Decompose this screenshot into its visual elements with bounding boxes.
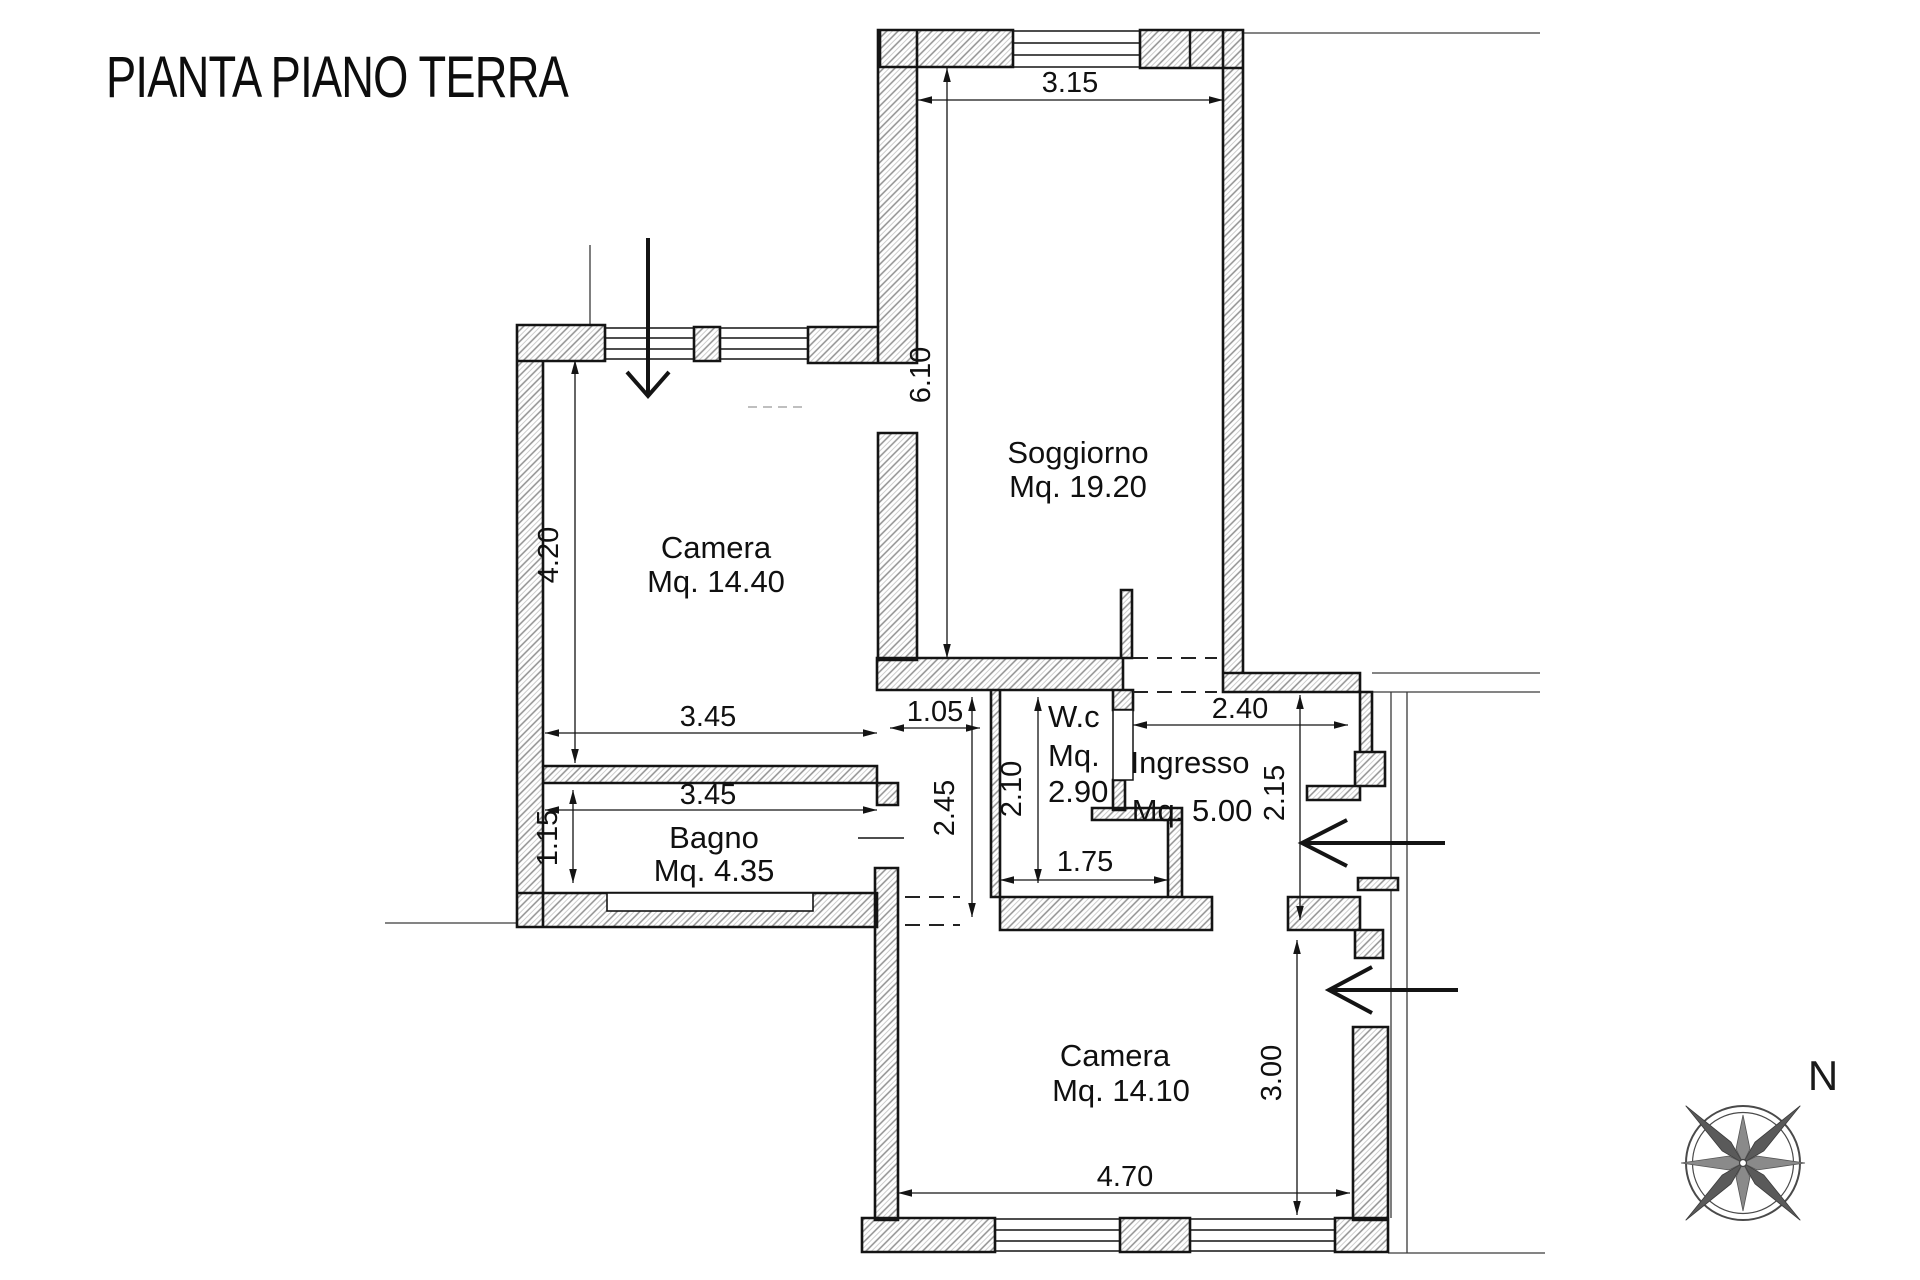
bagno-wall-niche [607,893,813,911]
room-label-soggiorno-area: Mq. 19.20 [1009,469,1147,504]
dim-bagno-width: 3.45 [680,779,736,811]
room-label-bagno-name: Bagno [669,820,759,855]
room-label-soggiorno-name: Soggiorno [1007,435,1148,470]
room-label-wc-area-label: Mq. [1048,738,1100,773]
room-label-ingresso-area: Mq. 5.00 [1132,793,1253,828]
floor-plan-drawing: PIANTA PIANO TERRA 3.15 [0,0,1920,1280]
room-label-camera2-area: Mq. 14.10 [1052,1073,1190,1108]
dim-corridor-width: 1.05 [907,696,963,728]
dim-camera1-width: 3.45 [680,701,736,733]
room-label-camera1-name: Camera [661,530,772,565]
dim-camera2-width: 4.70 [1097,1161,1153,1193]
paper-background [0,0,1920,1280]
room-label-camera1-area: Mq. 14.40 [647,564,785,599]
compass-center-dot [1740,1160,1747,1167]
compass-north-label: N [1808,1052,1838,1099]
dim-camera2-depth: 3.00 [1256,1045,1288,1101]
dim-wc-depth: 2.10 [996,761,1028,817]
dim-camera1-depth: 4.20 [533,527,565,583]
dim-soggiorno-depth: 6.10 [905,347,937,403]
dim-corridor-depth: 2.45 [929,780,961,836]
room-label-ingresso-name: Ingresso [1131,745,1250,780]
page-title: PIANTA PIANO TERRA [106,45,569,110]
compass-rose-icon [1681,1106,1805,1221]
room-label-wc-name: W.c [1048,699,1100,734]
dim-soggiorno-width: 3.15 [1042,67,1098,99]
room-label-bagno-area: Mq. 4.35 [654,853,775,888]
dim-ingresso-depth: 2.15 [1259,765,1291,821]
room-label-wc-area-value: 2.90 [1048,774,1108,809]
room-label-camera2-name: Camera [1060,1038,1171,1073]
dim-wc-width: 1.75 [1057,846,1113,878]
dim-bagno-depth: 1.15 [532,810,564,866]
dim-ingresso-width: 2.40 [1212,693,1268,725]
